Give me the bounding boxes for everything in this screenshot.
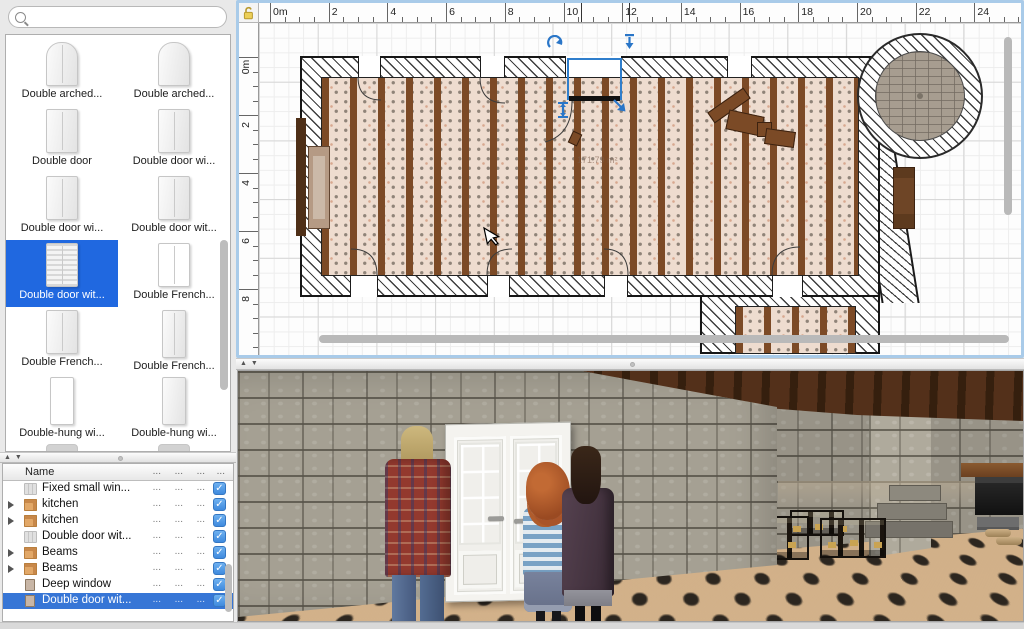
furniture-list-header[interactable]: Name ... ... ... ... <box>3 464 233 481</box>
ruler-label: 8 <box>240 288 252 310</box>
visibility-checkbox[interactable]: ✓ <box>213 482 226 495</box>
ruler-minor-tick <box>253 304 258 305</box>
furniture-rows: Fixed small win............✓kitchen.....… <box>3 481 233 609</box>
ruler-minor-tick <box>652 17 653 22</box>
furniture-row[interactable]: Beams.........✓ <box>3 545 233 561</box>
catalog-grid: Double arched...Double arched...Double d… <box>6 35 230 452</box>
furniture-row-name: Beams <box>42 546 78 558</box>
catalog-item[interactable]: Double arched... <box>118 39 230 106</box>
column-truncated-3[interactable]: ... <box>197 466 205 477</box>
trunk[interactable] <box>820 518 886 558</box>
ruler-major-tick <box>446 3 447 22</box>
wall-beam[interactable] <box>296 118 306 236</box>
catalog-item[interactable]: Double door wit... <box>118 173 230 240</box>
door-window-thumbnail-icon <box>162 310 186 358</box>
ruler-minor-tick <box>358 17 359 22</box>
ruler-major-tick <box>270 3 271 22</box>
ruler-minor-tick <box>314 17 315 22</box>
ruler-minor-tick <box>402 17 403 22</box>
catalog-item-label: Double French... <box>118 360 230 372</box>
catalog-item[interactable]: Double French... <box>118 307 230 374</box>
ruler-label: 2 <box>240 114 252 136</box>
group-icon <box>24 515 37 527</box>
ruler-minor-tick <box>253 159 258 160</box>
visibility-checkbox[interactable]: ✓ <box>213 530 226 543</box>
ruler-minor-tick <box>754 17 755 22</box>
search-icon <box>15 12 26 23</box>
door-opening[interactable] <box>604 276 628 297</box>
truncated-cell: ... <box>153 578 161 589</box>
visibility-checkbox[interactable]: ✓ <box>213 546 226 559</box>
door-opening[interactable] <box>772 276 803 297</box>
truncated-cell: ... <box>197 562 205 573</box>
man-jeans-leg <box>420 575 444 622</box>
furniture-list-scrollbar[interactable] <box>225 564 232 612</box>
ruler-minor-tick <box>945 17 946 22</box>
woman1-leg <box>552 611 561 622</box>
ruler-major-tick <box>857 3 858 22</box>
ruler-minor-tick <box>461 17 462 22</box>
ruler-minor-tick <box>253 333 258 334</box>
collapse-down-icon[interactable]: ▼ <box>251 360 259 367</box>
expand-triangle-icon[interactable] <box>8 565 14 573</box>
woman1-leg <box>536 611 545 622</box>
window-opening[interactable] <box>480 56 505 77</box>
furniture-row[interactable]: Fixed small win............✓ <box>3 481 233 497</box>
door-left-lower-panel <box>459 550 501 589</box>
catalog-item[interactable] <box>6 441 118 452</box>
furniture-catalog[interactable]: Double arched...Double arched...Double d… <box>5 34 231 452</box>
ruler-major-tick <box>564 3 565 22</box>
unlocked-padlock-icon[interactable] <box>242 6 256 20</box>
tower-center <box>917 93 923 99</box>
furniture-row[interactable]: kitchen.........✓ <box>3 513 233 529</box>
ruler-minor-tick <box>549 17 550 22</box>
catalog-item[interactable]: Double-hung wi... <box>6 374 118 441</box>
expand-triangle-icon[interactable] <box>8 517 14 525</box>
plan-canvas[interactable]: 171.79 m² <box>259 23 1021 355</box>
truncated-cell: ... <box>175 578 183 589</box>
ruler-minor-tick <box>373 17 374 22</box>
window-icon <box>24 483 37 495</box>
truncated-cell: ... <box>153 482 161 493</box>
furniture-row[interactable]: kitchen.........✓ <box>3 497 233 513</box>
truncated-cell: ... <box>175 482 183 493</box>
stone-step <box>877 503 947 520</box>
truncated-cell: ... <box>153 546 161 557</box>
plan-view[interactable]: 0m24681012141618202224 0m2468 <box>236 0 1024 358</box>
rotate-handle-icon[interactable] <box>547 35 565 53</box>
truncated-cell: ... <box>153 530 161 541</box>
ruler-minor-tick <box>930 17 931 22</box>
truncated-cell: ... <box>175 514 183 525</box>
ruler-label: 2 <box>332 6 338 18</box>
stone-step <box>889 485 941 501</box>
ruler-label: 0m <box>240 56 252 78</box>
ruler-label: 14 <box>684 6 696 18</box>
ruler-minor-tick <box>253 275 258 276</box>
column-truncated-4[interactable]: ... <box>217 466 225 477</box>
group-icon <box>24 563 37 575</box>
column-truncated-1[interactable]: ... <box>153 466 161 477</box>
catalog-item[interactable]: Double door <box>6 106 118 173</box>
search-input[interactable] <box>30 10 226 24</box>
collapse-down-icon[interactable]: ▼ <box>15 454 23 461</box>
catalog-item[interactable]: Double-hung wi... <box>118 374 230 441</box>
ruler-label: 0m <box>273 6 288 18</box>
ruler-minor-tick <box>725 17 726 22</box>
horizontal-ruler: 0m24681012141618202224 <box>259 3 1021 23</box>
elevation-handle-icon[interactable] <box>621 33 639 51</box>
truncated-cell: ... <box>153 514 161 525</box>
ruler-minor-tick <box>886 17 887 22</box>
ruler-minor-tick <box>475 17 476 22</box>
main-room-floor[interactable] <box>321 77 859 276</box>
splitter-grip[interactable] <box>118 456 123 461</box>
selected-door-rectangle[interactable] <box>567 58 622 100</box>
search-box[interactable] <box>8 6 227 28</box>
catalog-item-label: Double French... <box>6 356 118 368</box>
left-splitter[interactable]: ▲ ▼ <box>0 452 236 463</box>
window-icon <box>24 531 37 543</box>
ruler-minor-tick <box>253 188 258 189</box>
ruler-minor-tick <box>253 347 258 348</box>
ruler-label: 24 <box>977 6 989 18</box>
furniture-row-name: kitchen <box>42 514 78 526</box>
door-window-thumbnail-icon <box>158 444 190 452</box>
man-plaid-shirt-torso <box>385 459 451 577</box>
splitter-grip[interactable] <box>630 362 635 367</box>
door-window-thumbnail-icon <box>46 42 78 86</box>
catalog-item-label: Double arched... <box>118 88 230 100</box>
ruler-major-tick <box>681 3 682 22</box>
cabinet-plan[interactable] <box>893 167 915 229</box>
log <box>985 529 1011 537</box>
catalog-item[interactable]: Double door wit... <box>6 240 118 307</box>
door-window-thumbnail-icon <box>158 42 190 86</box>
catalog-item-label: Double-hung wi... <box>118 427 230 439</box>
truncated-cell: ... <box>197 482 205 493</box>
ruler-label: 22 <box>919 6 931 18</box>
ruler-minor-tick <box>519 17 520 22</box>
ruler-minor-tick <box>253 101 258 102</box>
ruler-major-tick <box>916 3 917 22</box>
truncated-cell: ... <box>197 530 205 541</box>
door-window-thumbnail-icon <box>46 444 78 452</box>
ruler-minor-tick <box>417 17 418 22</box>
truncated-cell: ... <box>153 594 161 605</box>
ruler-label: 18 <box>801 6 813 18</box>
window-opening[interactable] <box>350 276 378 297</box>
selection-extent-marker <box>581 3 582 23</box>
ruler-minor-tick <box>431 17 432 22</box>
ruler-minor-tick <box>253 130 258 131</box>
furniture-row-name: Double door wit... <box>42 594 132 606</box>
selection-extent-marker <box>629 3 630 23</box>
truncated-cell: ... <box>197 546 205 557</box>
ruler-minor-tick <box>253 246 258 247</box>
collapse-up-icon[interactable]: ▲ <box>240 360 248 367</box>
catalog-item-label: Double French... <box>118 289 230 301</box>
plan-3d-splitter[interactable]: ▲ ▼ <box>236 358 1024 370</box>
truncated-cell: ... <box>197 514 205 525</box>
ruler-minor-tick <box>901 17 902 22</box>
catalog-item-label: Double door wit... <box>118 222 230 234</box>
ruler-minor-tick <box>253 260 258 261</box>
ruler-major-tick <box>387 3 388 22</box>
ruler-label: 6 <box>449 6 455 18</box>
collapse-up-icon[interactable]: ▲ <box>4 454 12 461</box>
lower-room-floor[interactable] <box>735 306 856 354</box>
woman2-dark-hair <box>571 446 601 504</box>
ruler-major-tick <box>974 3 975 22</box>
furniture-row-name: kitchen <box>42 498 78 510</box>
catalog-item[interactable]: Double door wi... <box>6 173 118 240</box>
ruler-minor-tick <box>534 17 535 22</box>
ruler-label: 16 <box>743 6 755 18</box>
ruler-minor-tick <box>253 72 258 73</box>
ruler-minor-tick <box>813 17 814 22</box>
door-window-thumbnail-icon <box>158 176 190 220</box>
catalog-item-label: Double door wi... <box>6 222 118 234</box>
ruler-minor-tick <box>253 217 258 218</box>
ruler-minor-tick <box>299 17 300 22</box>
truncated-cell: ... <box>153 498 161 509</box>
catalog-item-label: Double arched... <box>6 88 118 100</box>
catalog-item[interactable]: Double arched... <box>6 39 118 106</box>
ruler-minor-tick <box>593 17 594 22</box>
ruler-label: 4 <box>240 172 252 194</box>
ruler-minor-tick <box>784 17 785 22</box>
door-window-thumbnail-icon <box>162 377 186 425</box>
ruler-label: 12 <box>625 6 637 18</box>
truncated-cell: ... <box>175 594 183 605</box>
fireplace-hearth <box>313 156 325 219</box>
truncated-cell: ... <box>153 562 161 573</box>
ruler-minor-tick <box>960 17 961 22</box>
ruler-label: 4 <box>390 6 396 18</box>
truncated-cell: ... <box>197 498 205 509</box>
plan-vertical-scrollbar[interactable] <box>1004 37 1012 215</box>
ruler-minor-tick <box>1004 17 1005 22</box>
furniture-row-name: Deep window <box>42 578 111 590</box>
fireplace-mantel[interactable] <box>961 463 1023 477</box>
window-opening[interactable] <box>358 56 381 77</box>
furniture-row-name: Beams <box>42 562 78 574</box>
visibility-checkbox[interactable]: ✓ <box>213 498 226 511</box>
truncated-cell: ... <box>175 530 183 541</box>
window-opening[interactable] <box>727 56 752 77</box>
door-window-thumbnail-icon <box>50 377 74 425</box>
furniture-row[interactable]: Double door wit............✓ <box>3 529 233 545</box>
fireplace-opening[interactable] <box>975 477 1023 515</box>
ruler-major-tick <box>329 3 330 22</box>
room-area-label: 171.79 m² <box>577 155 618 165</box>
window-opening[interactable] <box>487 276 510 297</box>
group-icon <box>24 547 37 559</box>
catalog-panel: Double arched...Double arched...Double d… <box>0 0 236 622</box>
man-plaid-shirt[interactable] <box>385 426 451 622</box>
ruler-major-tick <box>740 3 741 22</box>
column-truncated-2[interactable]: ... <box>175 466 183 477</box>
ruler-major-tick <box>798 3 799 22</box>
fireplace-rack <box>977 517 1019 527</box>
door-window-thumbnail-icon <box>46 310 78 354</box>
ruler-minor-tick <box>490 17 491 22</box>
visibility-checkbox[interactable]: ✓ <box>213 514 226 527</box>
door-window-thumbnail-icon <box>158 109 190 153</box>
resize-handle-icon[interactable] <box>611 97 629 115</box>
ruler-label: 8 <box>508 6 514 18</box>
ruler-minor-tick <box>578 17 579 22</box>
truncated-cell: ... <box>175 498 183 509</box>
furniture-row-name: Fixed small win... <box>42 482 130 494</box>
column-name[interactable]: Name <box>25 466 54 478</box>
truncated-cell: ... <box>175 562 183 573</box>
catalog-item-label: Double door wi... <box>118 155 230 167</box>
woman2-boot <box>575 606 585 622</box>
catalog-item[interactable]: Double door wi... <box>118 106 230 173</box>
catalog-item-label: Double door <box>6 155 118 167</box>
door-icon <box>25 579 35 591</box>
catalog-scrollbar[interactable] <box>220 240 228 390</box>
ruler-major-tick <box>505 3 506 22</box>
ruler-minor-tick <box>1018 17 1019 22</box>
door-window-thumbnail-icon <box>46 176 78 220</box>
furniture-row[interactable]: Deep window.........✓ <box>3 577 233 593</box>
ruler-corner <box>239 3 259 23</box>
ruler-label: 6 <box>240 230 252 252</box>
woman2-boot <box>591 606 601 622</box>
man-jeans-leg <box>392 575 416 622</box>
door-handle[interactable] <box>488 516 504 520</box>
ruler-minor-tick <box>666 17 667 22</box>
window-bottom-edge <box>0 622 1024 629</box>
woman-dark-dress[interactable] <box>562 446 616 622</box>
ruler-minor-tick <box>842 17 843 22</box>
catalog-item-label: Double-hung wi... <box>6 427 118 439</box>
furniture-row-name: Double door wit... <box>42 530 132 542</box>
ruler-minor-tick <box>253 202 258 203</box>
door-left-glass <box>459 442 501 545</box>
catalog-item[interactable] <box>118 441 230 452</box>
ruler-minor-tick <box>253 318 258 319</box>
door-window-thumbnail-icon <box>46 243 78 287</box>
log <box>996 537 1022 545</box>
furniture-row[interactable]: Double door wit............✓ <box>3 593 233 609</box>
truncated-cell: ... <box>197 594 205 605</box>
truncated-cell: ... <box>175 546 183 557</box>
ruler-minor-tick <box>608 17 609 22</box>
furniture-list[interactable]: Name ... ... ... ... Fixed small win....… <box>2 463 234 622</box>
truncated-cell: ... <box>197 578 205 589</box>
ruler-minor-tick <box>637 17 638 22</box>
ruler-minor-tick <box>343 17 344 22</box>
expand-triangle-icon[interactable] <box>8 501 14 509</box>
door-icon <box>25 595 35 607</box>
height-handle-icon[interactable] <box>555 101 573 119</box>
ruler-label: 10 <box>567 6 579 18</box>
sweet-home-3d-window: Double arched...Double arched...Double d… <box>0 0 1024 629</box>
ruler-minor-tick <box>828 17 829 22</box>
view-3d[interactable] <box>237 370 1024 622</box>
expand-triangle-icon[interactable] <box>8 549 14 557</box>
group-icon <box>24 499 37 511</box>
ruler-major-tick <box>622 3 623 22</box>
woman2-hem <box>564 590 612 606</box>
woman2-dress <box>562 488 614 596</box>
ruler-label: 20 <box>860 6 872 18</box>
ruler-minor-tick <box>710 17 711 22</box>
catalog-item[interactable]: Double French... <box>118 240 230 307</box>
ruler-minor-tick <box>989 17 990 22</box>
door-window-thumbnail-icon <box>46 109 78 153</box>
door-window-thumbnail-icon <box>158 243 190 287</box>
ruler-minor-tick <box>769 17 770 22</box>
furniture-row[interactable]: Beams.........✓ <box>3 561 233 577</box>
ruler-minor-tick <box>253 86 258 87</box>
vertical-ruler: 0m2468 <box>239 23 259 355</box>
plan-horizontal-scrollbar[interactable] <box>319 335 1009 343</box>
catalog-item[interactable]: Double French... <box>6 307 118 374</box>
ruler-minor-tick <box>253 144 258 145</box>
catalog-item-label: Double door wit... <box>6 289 118 301</box>
